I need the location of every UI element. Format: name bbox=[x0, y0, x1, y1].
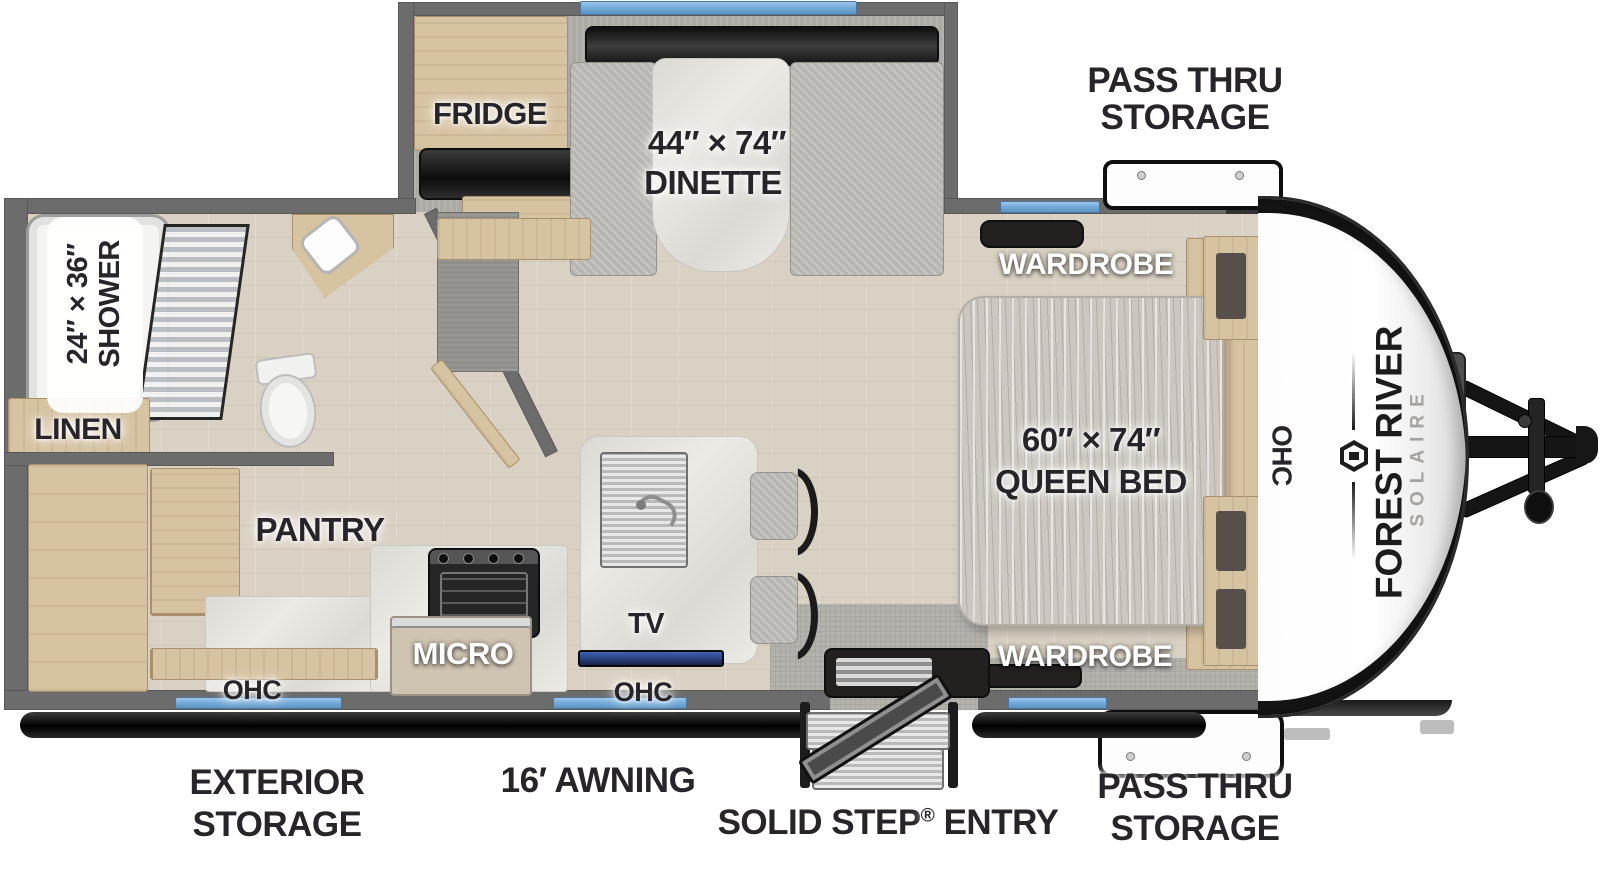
ohc-kitchen-left-label: OHC bbox=[212, 676, 292, 706]
wardrobe-top-label: WARDROBE bbox=[961, 248, 1211, 281]
brand-swoosh-top bbox=[1352, 352, 1355, 430]
brand-swoosh-bottom bbox=[1352, 482, 1355, 560]
bed-label: QUEEN BED bbox=[941, 464, 1241, 500]
dinette-label: DINETTE bbox=[563, 165, 863, 201]
kitchen-faucet-base bbox=[636, 500, 646, 510]
bottom-window-right bbox=[1008, 697, 1107, 709]
tv-label: TV bbox=[606, 609, 686, 641]
hitch-coupler bbox=[1576, 426, 1598, 464]
entry-step-well-tread bbox=[836, 658, 932, 686]
overhead-shelf bbox=[437, 218, 591, 260]
pass-thru-bottom-line2: STORAGE bbox=[1045, 808, 1345, 850]
exterior-storage-line2: STORAGE bbox=[127, 804, 427, 846]
awning-bar-right bbox=[972, 712, 1206, 738]
pass-thru-top-line1: PASS THRU bbox=[1035, 62, 1335, 99]
solid-step-entry-label: SOLID STEP® ENTRY bbox=[688, 804, 1088, 843]
brand-logo-icon-bar bbox=[1349, 452, 1359, 460]
pass-thru-door-top bbox=[1103, 160, 1283, 210]
pantry-label: PANTRY bbox=[220, 512, 420, 548]
shower-size-label: 24″ × 36″ SHOWER bbox=[63, 206, 127, 402]
fridge-label: FRIDGE bbox=[414, 97, 566, 131]
wardrobe-frame-bottom-slot-1 bbox=[1216, 511, 1246, 571]
shower-name-text: SHOWER bbox=[95, 206, 127, 402]
exterior-storage-line1: EXTERIOR bbox=[127, 762, 427, 804]
pass-thru-bottom-screw-left bbox=[1126, 752, 1135, 761]
wardrobe-frame-bottom-slot-2 bbox=[1216, 589, 1246, 649]
wardrobe-frame-top bbox=[1203, 236, 1263, 340]
bedroom-top-window bbox=[1000, 201, 1100, 213]
brand-make-label: FOREST RIVER bbox=[1370, 302, 1411, 622]
awning-label: 16′ AWNING bbox=[448, 762, 748, 801]
nightstand-tray-top bbox=[980, 220, 1084, 248]
solid-step-suffix: ENTRY bbox=[934, 803, 1058, 842]
ohc-kitchen-right-label: OHC bbox=[603, 678, 683, 708]
slide-out-right-wall bbox=[944, 2, 958, 212]
tongue-jack bbox=[1528, 398, 1545, 494]
pass-thru-bottom-line1: PASS THRU bbox=[1045, 766, 1345, 808]
stove-burner-2 bbox=[463, 553, 474, 564]
slide-out-window bbox=[580, 1, 857, 15]
wardrobe-frame-top-slot bbox=[1216, 253, 1246, 319]
wardrobe-frame-bottom bbox=[1203, 496, 1263, 666]
linen-label: LINEN bbox=[8, 413, 148, 446]
pass-thru-top-line2: STORAGE bbox=[1035, 99, 1335, 136]
stool-1-cushion bbox=[750, 472, 798, 540]
stove-burner-3 bbox=[488, 553, 499, 564]
rear-wardrobe-cabinet bbox=[28, 464, 148, 692]
front-cap-jack-pad-right bbox=[1420, 720, 1454, 734]
tongue-jack-wheel bbox=[1524, 490, 1554, 524]
bed-size-label: 60″ × 74″ bbox=[941, 422, 1241, 458]
hitch-tongue bbox=[1460, 436, 1582, 458]
solid-step-reg: ® bbox=[921, 805, 935, 826]
pass-thru-top-screw-left bbox=[1137, 171, 1146, 180]
slide-out-left-wall bbox=[398, 2, 414, 212]
stove-burner-1 bbox=[438, 553, 449, 564]
exterior-storage-label: EXTERIOR STORAGE bbox=[127, 762, 427, 846]
queen-bed-mattress bbox=[958, 296, 1224, 626]
pass-thru-top-label: PASS THRU STORAGE bbox=[1035, 62, 1335, 137]
wardrobe-bottom-label: WARDROBE bbox=[960, 640, 1210, 673]
solid-step-name: SOLID STEP bbox=[718, 803, 921, 842]
dinette-size-label: 44″ × 74″ bbox=[567, 125, 867, 161]
stove-burner-4 bbox=[513, 553, 524, 564]
ohc-bedroom-label: OHC bbox=[1266, 415, 1297, 495]
entry-steps bbox=[790, 698, 970, 798]
pass-thru-bottom-screw-right bbox=[1242, 752, 1251, 761]
fridge bbox=[419, 148, 578, 200]
rv-floorplan: FRIDGE 44″ × 74″ DINETTE 24″ × 36″ SHOWE… bbox=[0, 0, 1600, 882]
pass-thru-top-screw-right bbox=[1235, 171, 1244, 180]
stool-2-cushion bbox=[750, 576, 798, 644]
shower-size-text: 24″ × 36″ bbox=[63, 206, 95, 402]
pass-thru-bottom-label: PASS THRU STORAGE bbox=[1045, 766, 1345, 850]
brand-model-label: SOLAIRE bbox=[1409, 356, 1430, 556]
tv bbox=[578, 650, 724, 667]
front-cap-jack-pad-left bbox=[1284, 728, 1330, 740]
awning-bar-left bbox=[20, 712, 818, 738]
micro-label: MICRO bbox=[393, 637, 533, 671]
tongue-jack-handle bbox=[1518, 414, 1532, 428]
